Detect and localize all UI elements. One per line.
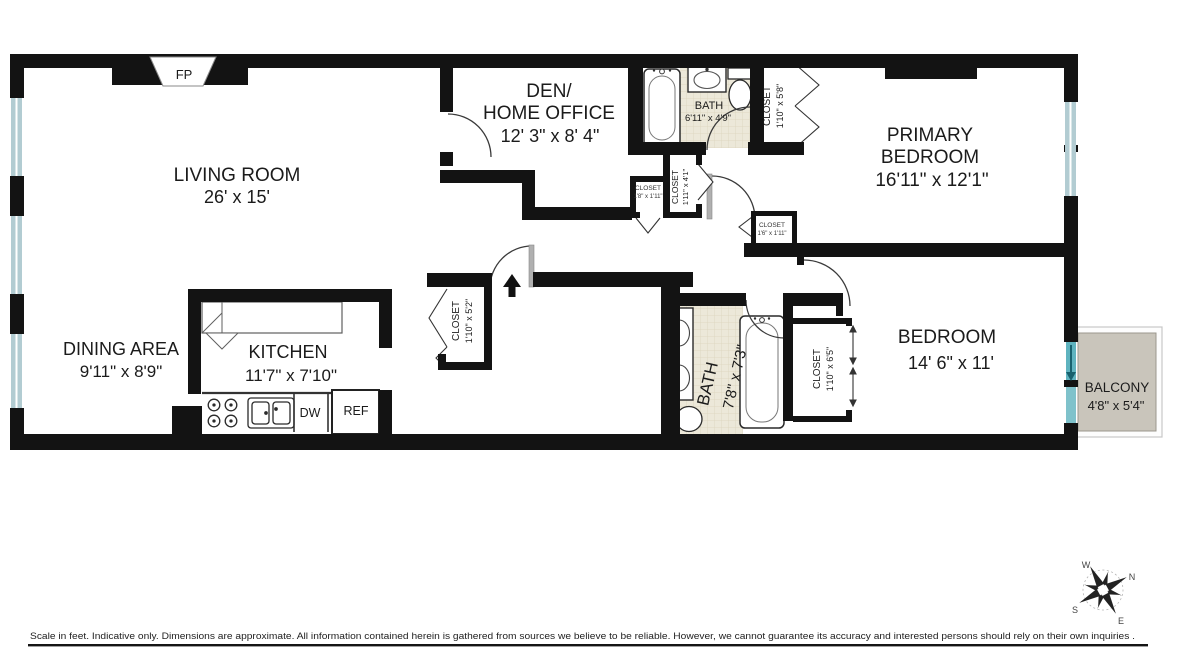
closet58-door <box>795 64 819 106</box>
closet52-dims: 1'10" x 5'2" <box>464 299 474 343</box>
balcony-dims: 4'8" x 5'4" <box>1088 398 1145 413</box>
footer: Scale in feet. Indicative only. Dimensio… <box>28 631 1148 646</box>
closet18-dims: 1'8" x 1'11" <box>633 194 662 200</box>
kitchen-sink-icon <box>248 398 294 428</box>
kitchen-corner-sink <box>206 333 238 349</box>
fireplace-label: FP <box>176 67 193 82</box>
closet18-label: CLOSET <box>635 185 661 192</box>
kitchen-dims: 11'7" x 7'10" <box>245 366 337 385</box>
primary-bedroom-label-2: BEDROOM <box>881 147 979 168</box>
entry-arrow-icon <box>503 274 521 297</box>
primary-door-arc <box>712 176 755 219</box>
compass-e-label: E <box>1118 616 1124 626</box>
primary-bedroom-label-1: PRIMARY <box>887 125 974 146</box>
closet16-dims: 1'6" x 1'11" <box>757 231 786 237</box>
closet58-door2 <box>795 106 819 148</box>
window-bedroom <box>1066 387 1076 423</box>
living-room-dims: 26' x 15' <box>204 187 270 207</box>
dishwasher-label: DW <box>300 406 321 420</box>
den-label-1: DEN/ <box>526 81 572 102</box>
footer-rule <box>28 644 1148 646</box>
bath1-label: BATH <box>695 100 724 112</box>
refrigerator-label: REF <box>344 404 369 418</box>
closet16-door <box>739 217 752 237</box>
closet52-label: CLOSET <box>451 301 462 341</box>
floor-plan-page: LIVING ROOM 26' x 15' DINING AREA 9'11" … <box>0 0 1177 653</box>
closet58-dims: 1'10" x 5'8" <box>775 84 785 128</box>
floor-plan-svg: LIVING ROOM 26' x 15' DINING AREA 9'11" … <box>0 0 1177 653</box>
compass-n-label: N <box>1129 572 1136 582</box>
closet58-label: CLOSET <box>762 86 773 126</box>
closet65-dims: 1'10" x 6'5" <box>825 347 835 391</box>
disclaimer-text: Scale in feet. Indicative only. Dimensio… <box>30 631 1135 642</box>
closet65-slider-arrows <box>850 326 856 406</box>
balcony-label: BALCONY <box>1085 380 1150 395</box>
bath1-dims: 6'11" x 4'9" <box>685 113 731 124</box>
kitchen-counter <box>202 302 342 333</box>
compass-w-label: W <box>1082 560 1091 570</box>
bedroom-label: BEDROOM <box>898 327 996 348</box>
compass-s-label: S <box>1072 605 1078 615</box>
closet18-door <box>636 218 660 233</box>
dining-area-dims: 9'11" x 8'9" <box>80 362 163 381</box>
kitchen-label: KITCHEN <box>248 342 327 362</box>
dining-area-label: DINING AREA <box>63 339 179 359</box>
primary-bedroom-dims: 16'11" x 12'1" <box>875 170 988 191</box>
toilet-icon <box>728 68 752 79</box>
stove-icon <box>208 399 237 427</box>
living-room-label: LIVING ROOM <box>174 165 301 186</box>
closet65-label: CLOSET <box>812 349 823 389</box>
den-label-2: HOME OFFICE <box>483 103 615 124</box>
closet41-dims: 1'11" x 4'1" <box>681 168 690 205</box>
den-dims: 12' 3" x 8' 4" <box>501 126 600 146</box>
closet16-label: CLOSET <box>759 222 785 229</box>
bedroom-dims: 14' 6" x 11' <box>908 353 994 373</box>
compass-rose: N W S E <box>1066 553 1139 626</box>
closet52-door <box>429 289 447 347</box>
closet41-label: CLOSET <box>670 170 680 204</box>
